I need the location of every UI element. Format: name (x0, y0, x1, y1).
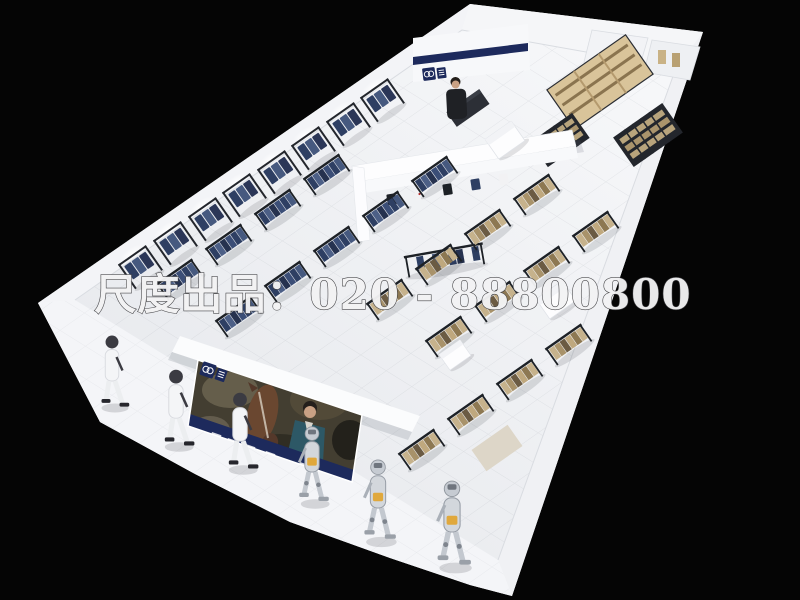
store-render-scene: 尺度出品：020 - 88800800 (0, 0, 800, 600)
folded-stock (672, 53, 680, 67)
store-3d-floorplan: 尺度出品：020 - 88800800 (0, 0, 800, 600)
watermark-text: 尺度出品：020 - 88800800 (94, 270, 691, 319)
folded-stock (658, 50, 666, 64)
